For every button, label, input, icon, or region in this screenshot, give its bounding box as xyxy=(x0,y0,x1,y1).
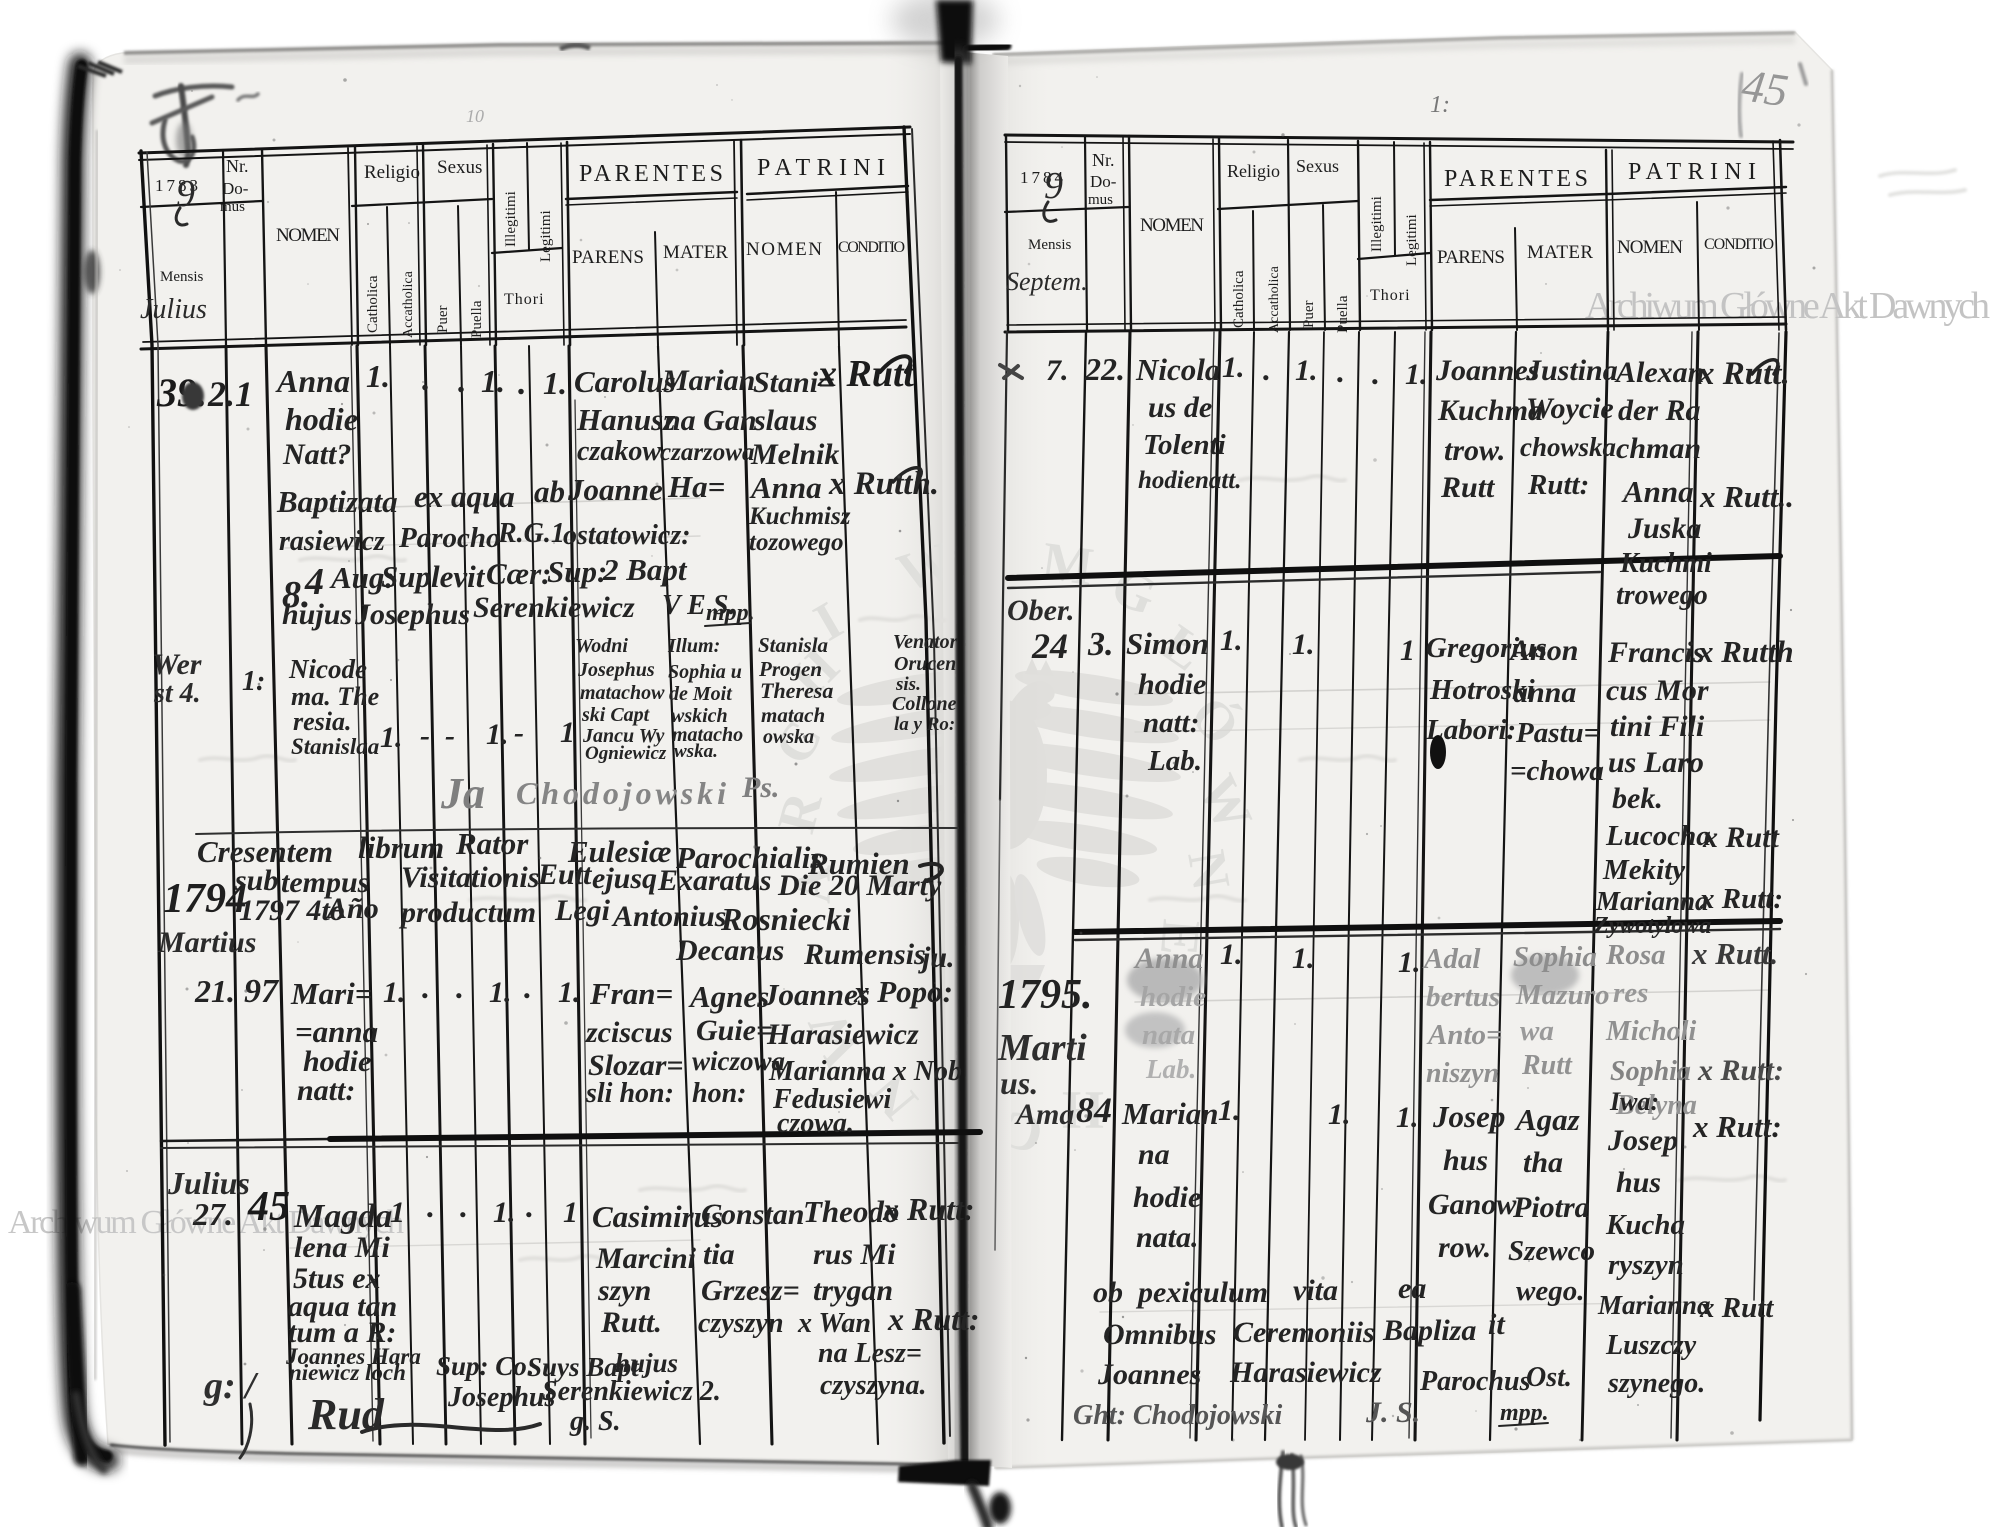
svg-text:Anna: Anna xyxy=(275,363,350,399)
svg-text:1.: 1. xyxy=(558,976,581,1009)
svg-text:slaus: slaus xyxy=(753,404,817,437)
svg-text:1.: 1. xyxy=(481,363,505,399)
svg-text:84: 84 xyxy=(1076,1090,1112,1130)
svg-text:tha: tha xyxy=(1523,1146,1563,1179)
svg-text:x Rutt:: x Rutt: xyxy=(882,1191,975,1227)
svg-text:1.: 1. xyxy=(1396,1101,1419,1134)
svg-text:.: . xyxy=(1263,351,1271,387)
svg-text:Fran=: Fran= xyxy=(589,976,673,1011)
svg-text:ejusq: ejusq xyxy=(592,862,657,895)
svg-text:PARENTES: PARENTES xyxy=(579,161,727,187)
svg-text:mpp.: mpp. xyxy=(1500,1400,1549,1426)
svg-text:zciscus: zciscus xyxy=(585,1016,673,1049)
svg-text:mpp.: mpp. xyxy=(706,600,755,626)
svg-text:Mensis: Mensis xyxy=(1028,237,1072,253)
svg-text:Martius: Martius xyxy=(157,926,256,959)
svg-text:Tolenti: Tolenti xyxy=(1143,429,1226,461)
svg-text:1.: 1. xyxy=(1292,942,1315,975)
svg-text:na Lesz=: na Lesz= xyxy=(818,1338,922,1369)
svg-text:Lucocha: Lucocha xyxy=(1605,820,1711,852)
svg-text:Joannes: Joannes xyxy=(1435,354,1539,387)
svg-text:1.: 1. xyxy=(1398,946,1421,979)
svg-text:PATRINI: PATRINI xyxy=(1628,159,1760,185)
svg-text:natt:: natt: xyxy=(1143,707,1199,739)
svg-text:ryszyn: ryszyn xyxy=(1608,1249,1684,1281)
svg-text:Josep: Josep xyxy=(1607,1124,1678,1157)
svg-text:.: . xyxy=(422,969,430,1005)
svg-text:Rutt:: Rutt: xyxy=(1527,469,1589,501)
svg-text:1:: 1: xyxy=(1430,92,1450,118)
svg-text:Kuchmi: Kuchmi xyxy=(1619,548,1712,579)
svg-text:Ja: Ja xyxy=(440,769,485,818)
svg-text:Cær:: Cær: xyxy=(486,556,551,591)
svg-text:czyszyna.: czyszyna. xyxy=(820,1370,927,1401)
svg-text:Marcini: Marcini xyxy=(595,1242,697,1275)
svg-text:Harasiewicz: Harasiewicz xyxy=(1229,1356,1382,1389)
svg-text:Mazuro: Mazuro xyxy=(1515,979,1610,1011)
svg-text:ab: ab xyxy=(534,474,565,509)
svg-text:it: it xyxy=(1488,1308,1506,1341)
svg-text:x Rutt.: x Rutt. xyxy=(1691,936,1778,971)
svg-text:Serenkiewicz 2.: Serenkiewicz 2. xyxy=(542,1376,721,1407)
svg-text:Agaz: Agaz xyxy=(1514,1102,1580,1137)
svg-text:Marti: Marti xyxy=(997,1027,1087,1069)
svg-text:Legi: Legi xyxy=(554,894,611,927)
svg-text:1.: 1. xyxy=(383,976,406,1009)
svg-text:Magda: Magda xyxy=(293,1198,392,1235)
svg-text:Stanisla: Stanisla xyxy=(758,633,828,657)
svg-text:9: 9 xyxy=(1044,165,1063,207)
svg-text:der Ra: der Ra xyxy=(1618,394,1701,427)
svg-text:anna: anna xyxy=(1513,676,1576,709)
svg-text:.: . xyxy=(427,1188,435,1224)
svg-text:45: 45 xyxy=(247,1184,290,1230)
svg-text:R.G.1: R.G.1 xyxy=(497,518,565,549)
svg-text:us de: us de xyxy=(1148,391,1212,424)
svg-text:Illum:: Illum: xyxy=(667,635,720,657)
svg-text:Serenkiewicz: Serenkiewicz xyxy=(473,591,635,624)
svg-text:Wodni: Wodni xyxy=(575,635,628,657)
svg-text:J. S.: J. S. xyxy=(1365,1396,1420,1429)
svg-text:Simon: Simon xyxy=(1126,626,1209,661)
svg-text:cus Mor: cus Mor xyxy=(1606,674,1709,707)
svg-text:PATRINI: PATRINI xyxy=(757,155,889,181)
svg-text:czakow: czakow xyxy=(577,436,661,467)
svg-text:10: 10 xyxy=(466,106,484,126)
svg-text:NOMEN: NOMEN xyxy=(276,225,342,246)
svg-text:.: . xyxy=(524,969,532,1005)
svg-text:czowa.: czowa. xyxy=(777,1108,854,1139)
svg-text:Alexan: Alexan xyxy=(1614,356,1704,389)
svg-text:.: . xyxy=(1372,355,1380,391)
svg-text:Illegitimi: Illegitimi xyxy=(1369,196,1385,252)
svg-text:Adal: Adal xyxy=(1422,943,1481,975)
svg-text:Orucen: Orucen xyxy=(894,653,956,675)
svg-text:x Rutt:: x Rutt: xyxy=(1692,1109,1782,1144)
svg-text:CONDITIO: CONDITIO xyxy=(838,239,905,256)
svg-text:szynego.: szynego. xyxy=(1607,1368,1705,1399)
svg-text:1.: 1. xyxy=(543,365,567,401)
svg-text:NOMEN: NOMEN xyxy=(1617,237,1685,258)
svg-text:Anna: Anna xyxy=(1133,942,1203,975)
svg-text:x Rutt: x Rutt xyxy=(1702,821,1781,854)
svg-text:=anna: =anna xyxy=(295,1014,378,1049)
svg-text:Parocho: Parocho xyxy=(398,522,501,554)
svg-text:PARENS: PARENS xyxy=(572,247,646,268)
svg-text:.: . xyxy=(518,365,527,402)
svg-text:Thori: Thori xyxy=(504,291,545,308)
svg-text:x Wan: x Wan xyxy=(797,1308,871,1339)
svg-text:g. S.: g. S. xyxy=(569,1406,621,1437)
svg-text:rasiewicz: rasiewicz xyxy=(279,526,385,557)
svg-text:Lab.: Lab. xyxy=(1145,1054,1196,1084)
svg-text:1.: 1. xyxy=(1405,358,1428,391)
svg-text:-: - xyxy=(445,719,455,752)
svg-text:na: na xyxy=(1138,1138,1170,1171)
svg-text:MATER: MATER xyxy=(663,242,730,263)
svg-text:ostatowicz:: ostatowicz: xyxy=(563,520,691,551)
svg-text:1.: 1. xyxy=(1220,624,1243,657)
svg-text:Joanne: Joanne xyxy=(567,472,663,507)
svg-text:Micholi: Micholi xyxy=(1605,1016,1696,1047)
svg-text:res: res xyxy=(1613,977,1648,1009)
svg-text:Nicode: Nicode xyxy=(288,654,367,684)
svg-text:1.: 1. xyxy=(1295,354,1318,387)
svg-text:Sexus: Sexus xyxy=(1296,156,1339,176)
svg-text:1.: 1. xyxy=(486,718,509,751)
svg-text:Juska: Juska xyxy=(1627,512,1701,545)
svg-text:g: /: g: / xyxy=(203,1365,259,1407)
svg-text:Hanusz: Hanusz xyxy=(576,402,675,437)
svg-text:czarzowa: czarzowa xyxy=(660,439,754,466)
svg-text:CONDITIO: CONDITIO xyxy=(1704,236,1774,253)
svg-text:Melnik: Melnik xyxy=(750,438,839,471)
svg-text:Mari=: Mari= xyxy=(290,976,372,1011)
svg-text:Puer: Puer xyxy=(1301,301,1317,329)
svg-text:nata: nata xyxy=(1142,1019,1195,1051)
svg-text:x Rutt:: x Rutt: xyxy=(1697,1054,1784,1087)
svg-text:1:: 1: xyxy=(242,666,265,697)
svg-text:1.: 1. xyxy=(1328,1098,1351,1131)
svg-text:Nicola: Nicola xyxy=(1135,352,1220,387)
svg-text:Bapliza: Bapliza xyxy=(1382,1314,1476,1347)
svg-text:1.: 1. xyxy=(380,721,403,754)
svg-text:1.: 1. xyxy=(493,1196,516,1229)
svg-text:Ceremoniis: Ceremoniis xyxy=(1233,1316,1375,1349)
svg-text:Rud: Rud xyxy=(307,1390,385,1439)
svg-text:tini Fili: tini Fili xyxy=(1610,710,1705,743)
svg-text:Marian: Marian xyxy=(1121,1096,1218,1131)
svg-text:Religio: Religio xyxy=(364,162,420,183)
svg-text:x Rutt: x Rutt xyxy=(1699,1292,1774,1324)
svg-text:Luszczy: Luszczy xyxy=(1605,1330,1697,1361)
svg-text:Antonius: Antonius xyxy=(611,900,726,933)
svg-text:1: 1 xyxy=(560,716,575,749)
svg-text:Josep: Josep xyxy=(1432,1099,1505,1134)
svg-text:21.: 21. xyxy=(194,973,235,1009)
svg-text:Harasiewicz: Harasiewicz xyxy=(766,1018,919,1051)
svg-text:wska.: wska. xyxy=(674,741,718,762)
svg-text:Collone: Collone xyxy=(892,693,957,715)
svg-text:Rosniecki: Rosniecki xyxy=(720,901,851,937)
svg-text:3.: 3. xyxy=(1087,626,1114,663)
svg-text:Thori: Thori xyxy=(1370,287,1411,304)
svg-text:1.: 1. xyxy=(1220,938,1243,971)
svg-text:Mensis: Mensis xyxy=(160,269,204,285)
svg-text:Rator: Rator xyxy=(455,826,529,861)
svg-text:Natt?: Natt? xyxy=(282,438,351,471)
svg-text:Sophia: Sophia xyxy=(1610,1056,1691,1087)
svg-text:Die 20 Marty: Die 20 Marty xyxy=(777,869,942,902)
svg-text:Kuchmisz: Kuchmisz xyxy=(748,503,851,530)
svg-text:szyn: szyn xyxy=(597,1274,651,1307)
svg-text:Grzesz=: Grzesz= xyxy=(701,1274,800,1307)
svg-text:ob: ob xyxy=(1093,1276,1123,1309)
svg-text:hus: hus xyxy=(1616,1166,1661,1199)
svg-text:Anna: Anna xyxy=(749,470,822,505)
svg-text:ski Capt: ski Capt xyxy=(581,704,651,726)
svg-text:bertus: bertus xyxy=(1426,981,1500,1013)
svg-text:niszyn: niszyn xyxy=(1426,1058,1499,1089)
svg-text:Justina: Justina xyxy=(1525,354,1618,387)
svg-text:Rutt.: Rutt. xyxy=(600,1306,662,1339)
svg-text:us Laro: us Laro xyxy=(1608,746,1704,779)
svg-text:Sup: Co:: Sup: Co: xyxy=(436,1351,536,1381)
svg-text:Anto=: Anto= xyxy=(1426,1019,1503,1051)
svg-text:.: . xyxy=(422,361,431,398)
svg-text:niewicz loch: niewicz loch xyxy=(289,1360,406,1385)
svg-text:hodie: hodie xyxy=(1133,1181,1201,1214)
svg-text:Do-: Do- xyxy=(222,179,249,198)
svg-text:st 4.: st 4. xyxy=(153,678,201,709)
svg-text:hus: hus xyxy=(1443,1144,1488,1177)
svg-text:Septem.: Septem. xyxy=(1006,267,1088,296)
svg-text:Decanus: Decanus xyxy=(675,934,784,967)
svg-text:Nr.: Nr. xyxy=(1092,150,1115,170)
svg-text:Joannes: Joannes xyxy=(1097,1358,1201,1391)
svg-text:PARENS: PARENS xyxy=(1437,247,1507,268)
svg-text:Agnes: Agnes xyxy=(688,979,769,1014)
svg-text:Sophia: Sophia xyxy=(1513,941,1597,973)
svg-text:Puer: Puer xyxy=(435,306,451,334)
svg-text:Anna: Anna xyxy=(1621,474,1694,509)
svg-text:Kucha: Kucha xyxy=(1605,1209,1685,1241)
svg-text:.: . xyxy=(458,363,467,400)
svg-text:lena Mi: lena Mi xyxy=(294,1231,391,1264)
svg-text:24: 24 xyxy=(1031,626,1068,666)
svg-text:x Rutth: x Rutth xyxy=(1697,634,1794,669)
svg-text:PARENTES: PARENTES xyxy=(1444,166,1592,192)
svg-text:hujus: hujus xyxy=(615,1348,678,1378)
svg-text:de Moit: de Moit xyxy=(669,683,733,705)
svg-text:Parochus: Parochus xyxy=(1419,1366,1531,1397)
svg-text:Iwa:: Iwa: xyxy=(1609,1087,1659,1116)
svg-text:22.: 22. xyxy=(1084,351,1125,387)
svg-text:.: . xyxy=(526,1188,534,1224)
svg-text:2 Bapt: 2 Bapt xyxy=(602,552,688,587)
svg-text:Marianna: Marianna xyxy=(1595,886,1709,916)
svg-text:hujus: hujus xyxy=(282,598,352,631)
svg-text:czyszyn: czyszyn xyxy=(698,1308,784,1339)
svg-text:1: 1 xyxy=(563,1196,578,1229)
svg-text:1.: 1. xyxy=(1218,1094,1241,1127)
svg-text:Año: Año xyxy=(325,892,379,925)
svg-text:Szewco: Szewco xyxy=(1508,1235,1595,1267)
svg-text:chowska: chowska xyxy=(1520,432,1616,462)
svg-text:matach: matach xyxy=(761,703,825,727)
svg-text:1.: 1. xyxy=(366,358,390,394)
svg-text:x Rutt..: x Rutt.. xyxy=(1699,479,1794,514)
svg-text:27.: 27. xyxy=(192,1196,233,1232)
svg-text:Sophia u: Sophia u xyxy=(668,661,742,683)
svg-text:productum: productum xyxy=(398,896,536,929)
svg-text:Sup:: Sup: xyxy=(547,554,607,589)
svg-text:1.: 1. xyxy=(489,976,512,1009)
svg-text:sub: sub xyxy=(234,864,278,897)
svg-text:Catholica: Catholica xyxy=(365,275,381,333)
svg-text:Catholica: Catholica xyxy=(1231,270,1247,328)
svg-text:sis.: sis. xyxy=(895,674,921,695)
svg-text:45: 45 xyxy=(1739,59,1792,116)
svg-text:Josephus: Josephus xyxy=(354,598,470,631)
svg-text:Visitationis: Visitationis xyxy=(401,861,539,894)
svg-text:Pastu=: Pastu= xyxy=(1515,717,1600,749)
svg-text:NOMEN: NOMEN xyxy=(746,239,824,260)
svg-text:Accatholica: Accatholica xyxy=(401,270,416,338)
svg-text:2.1: 2.1 xyxy=(207,374,253,414)
svg-text:ex aqua: ex aqua xyxy=(414,479,515,514)
svg-text:-: - xyxy=(514,716,524,749)
svg-text:Carolus: Carolus xyxy=(574,364,676,399)
svg-text:Rumensis: Rumensis xyxy=(803,938,926,971)
svg-text:x Popo:: x Popo: xyxy=(853,974,953,1009)
svg-text:hodienatt.: hodienatt. xyxy=(1138,467,1242,494)
svg-text:1.: 1. xyxy=(1292,628,1315,661)
svg-text:pexiculum: pexiculum xyxy=(1135,1276,1268,1309)
svg-text:hodie: hodie xyxy=(285,401,358,437)
svg-text:Accatholica: Accatholica xyxy=(1267,265,1282,333)
svg-text:Ost.: Ost. xyxy=(1526,1362,1572,1393)
svg-text:Anon: Anon xyxy=(1508,634,1578,667)
svg-text:Ober.: Ober. xyxy=(1007,594,1075,627)
svg-text:Francis: Francis xyxy=(1607,636,1705,669)
svg-text:sli hon:: sli hon: xyxy=(585,1078,674,1109)
svg-text:Rutt: Rutt xyxy=(1521,1050,1573,1081)
svg-text:resia.: resia. xyxy=(293,707,352,736)
svg-text:Ganow: Ganow xyxy=(1428,1188,1517,1221)
svg-text:1.: 1. xyxy=(1222,351,1245,384)
svg-text:MATER: MATER xyxy=(1527,242,1595,263)
svg-text:Suplevit: Suplevit xyxy=(381,559,486,594)
svg-text:7.: 7. xyxy=(1046,354,1069,387)
svg-text:librum: librum xyxy=(358,830,444,865)
svg-text:Religio: Religio xyxy=(1227,161,1280,181)
svg-text:la y Ro:: la y Ro: xyxy=(894,714,955,735)
svg-text:chman: chman xyxy=(1616,432,1701,465)
svg-text:trowego: trowego xyxy=(1616,580,1708,611)
svg-text:Do-: Do- xyxy=(1090,172,1117,191)
svg-text:Constan: Constan xyxy=(701,1198,804,1231)
svg-text:tia: tia xyxy=(703,1238,735,1271)
svg-text:Omnibus: Omnibus xyxy=(1103,1318,1216,1351)
svg-text:Marian: Marian xyxy=(661,364,755,397)
svg-text:trow.: trow. xyxy=(1444,434,1505,467)
svg-text:Ght: Chodojowski: Ght: Chodojowski xyxy=(1073,1400,1282,1431)
svg-text:Guie=: Guie= xyxy=(696,1014,773,1047)
svg-text:Marianna: Marianna xyxy=(1597,1290,1711,1320)
svg-text:1: 1 xyxy=(1400,634,1415,667)
svg-text:Josephus: Josephus xyxy=(577,659,655,681)
svg-text:hodie: hodie xyxy=(1138,668,1206,701)
svg-text:x Rutt:: x Rutt: xyxy=(1699,883,1783,915)
svg-text:hodie: hodie xyxy=(1140,981,1206,1013)
svg-text:trygan: trygan xyxy=(813,1274,893,1307)
svg-text:ju.: ju. xyxy=(918,941,955,974)
svg-text:Legitimi: Legitimi xyxy=(1404,214,1420,266)
svg-text:Ogniewicz: Ogniewicz xyxy=(585,743,667,764)
svg-text:NOMEN: NOMEN xyxy=(1140,215,1206,236)
svg-text:Julius: Julius xyxy=(140,294,207,325)
svg-text:Theresa: Theresa xyxy=(760,678,833,703)
svg-text:Legitimi: Legitimi xyxy=(538,210,554,262)
svg-text:wego.: wego. xyxy=(1516,1275,1584,1307)
svg-text:Baptizata: Baptizata xyxy=(276,484,398,519)
svg-text:tozowego: tozowego xyxy=(749,529,843,556)
svg-text:1: 1 xyxy=(390,1196,405,1229)
svg-text:Sexus: Sexus xyxy=(437,157,482,178)
svg-text:Puella: Puella xyxy=(469,300,485,338)
svg-text:Eutt: Eutt xyxy=(537,858,593,891)
svg-text:Archiwum Główne Akt Dawnych: Archiwum Główne Akt Dawnych xyxy=(1585,285,1990,327)
svg-text:Rosa: Rosa xyxy=(1605,939,1666,971)
svg-text:4: 4 xyxy=(304,561,324,603)
svg-text:=chowa: =chowa xyxy=(1510,755,1604,787)
svg-text:Rutt: Rutt xyxy=(1440,471,1496,504)
svg-text:na Gan: na Gan xyxy=(664,404,757,437)
svg-text:Wer: Wer xyxy=(152,648,202,681)
svg-text:wa: wa xyxy=(1520,1015,1554,1047)
svg-text:Josephus: Josephus xyxy=(447,1382,555,1413)
svg-text:Ps.: Ps. xyxy=(741,771,780,804)
svg-text:Exaratus: Exaratus xyxy=(657,864,771,897)
svg-text:Ama: Ama xyxy=(1014,1098,1074,1131)
svg-text:Mekity: Mekity xyxy=(1602,854,1685,886)
svg-text:Venator: Venator xyxy=(893,631,958,653)
svg-text:mus: mus xyxy=(1088,192,1113,208)
svg-text:Illegitimi: Illegitimi xyxy=(503,191,519,247)
svg-text:hon:: hon: xyxy=(692,1078,746,1109)
svg-text:.: . xyxy=(460,1188,468,1224)
svg-text:rus Mi: rus Mi xyxy=(813,1238,896,1271)
svg-text:Woycie: Woycie xyxy=(1526,392,1614,425)
svg-text:vita: vita xyxy=(1293,1274,1338,1307)
svg-text:Marianna x Nob: Marianna x Nob xyxy=(768,1056,962,1087)
svg-text:Puella: Puella xyxy=(1335,295,1351,333)
svg-text:1795.: 1795. xyxy=(998,972,1093,1018)
svg-text:nata.: nata. xyxy=(1136,1221,1199,1254)
svg-text:bek.: bek. xyxy=(1612,782,1663,815)
svg-text:x Rutt:: x Rutt: xyxy=(887,1301,980,1337)
svg-text:Nr.: Nr. xyxy=(226,156,249,176)
svg-text:us.: us. xyxy=(1000,1065,1038,1101)
svg-text:mus: mus xyxy=(220,199,245,215)
svg-text:Piotra: Piotra xyxy=(1512,1191,1590,1224)
svg-text:x Rutt: x Rutt xyxy=(817,353,916,395)
svg-text:97: 97 xyxy=(244,973,280,1010)
svg-text:natt:: natt: xyxy=(297,1074,355,1107)
svg-text:.: . xyxy=(456,969,464,1005)
svg-text:Ha=: Ha= xyxy=(667,469,725,504)
